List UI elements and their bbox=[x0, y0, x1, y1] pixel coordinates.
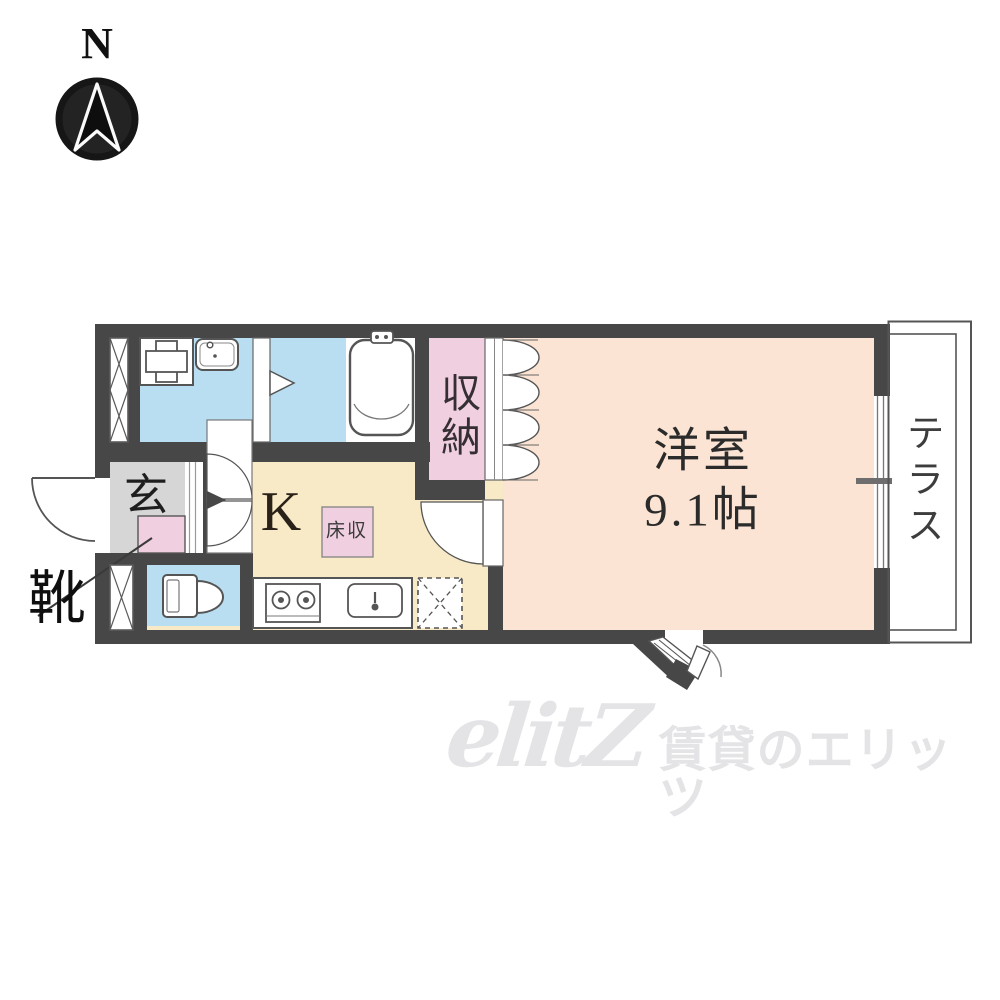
kitchen-label: K bbox=[261, 484, 301, 540]
bath-door-strip bbox=[253, 338, 270, 442]
watermark-brand: 賃貸のエリッツ bbox=[659, 727, 1000, 823]
window-latch bbox=[856, 478, 892, 484]
wall-bottom-right bbox=[703, 630, 890, 644]
wall-kitchen-room bbox=[488, 566, 503, 630]
entrance-label: 玄 bbox=[124, 474, 168, 518]
watermark-logo: elitZ bbox=[442, 694, 649, 780]
compass-icon bbox=[59, 81, 135, 157]
wall-shaft-right bbox=[133, 565, 147, 630]
floorplan-page: N 玄 靴 K 床収 収納 洋室 9.1帖 テラス elitZ 賃貸のエリッツ bbox=[0, 0, 1000, 1000]
closet-label: 収納 bbox=[437, 372, 477, 460]
exterior-door-gap bbox=[665, 630, 703, 644]
shoe-box-label: 靴 bbox=[28, 570, 86, 628]
wall-bottom-left bbox=[95, 630, 665, 644]
washer-pan-icon bbox=[140, 338, 193, 385]
western-room-name: 洋室 bbox=[653, 429, 753, 476]
wall-toilet-right bbox=[240, 553, 253, 630]
refrigerator-space-icon bbox=[418, 578, 462, 628]
wall-entrance-bottom bbox=[110, 553, 253, 565]
wall-mid-horizontal-a bbox=[110, 442, 207, 462]
pipe-shaft-top-icon bbox=[110, 338, 128, 442]
wall-closet-bottom bbox=[415, 480, 485, 500]
western-room-size: 9.1帖 bbox=[644, 488, 762, 535]
stove-icon bbox=[266, 584, 320, 622]
entrance-step bbox=[185, 462, 203, 553]
terrace-label: テラス bbox=[902, 413, 940, 551]
kitchen-sink-icon bbox=[348, 584, 402, 617]
bathtub-icon bbox=[350, 331, 413, 435]
floor-storage-label: 床収 bbox=[326, 522, 368, 541]
shoe-box bbox=[138, 516, 185, 553]
wall-left-upper bbox=[95, 324, 110, 478]
kitchen-room-door-leaf bbox=[483, 500, 503, 566]
entrance-door-gap bbox=[95, 478, 110, 553]
pipe-shaft-bottom-icon bbox=[110, 565, 133, 630]
hall-doors bbox=[207, 420, 252, 553]
watermark: elitZ 賃貸のエリッツ bbox=[447, 694, 1000, 823]
wall-left-lower bbox=[95, 553, 110, 644]
wall-closet-left bbox=[415, 338, 429, 500]
wall-top bbox=[95, 324, 890, 338]
washbasin-icon bbox=[196, 339, 238, 370]
wall-mid-horizontal-b bbox=[252, 442, 430, 462]
compass-north-label: N bbox=[81, 22, 113, 66]
entrance-door-swing bbox=[32, 478, 95, 541]
wall-washroom-left bbox=[128, 338, 140, 442]
entrance-door bbox=[32, 478, 110, 553]
